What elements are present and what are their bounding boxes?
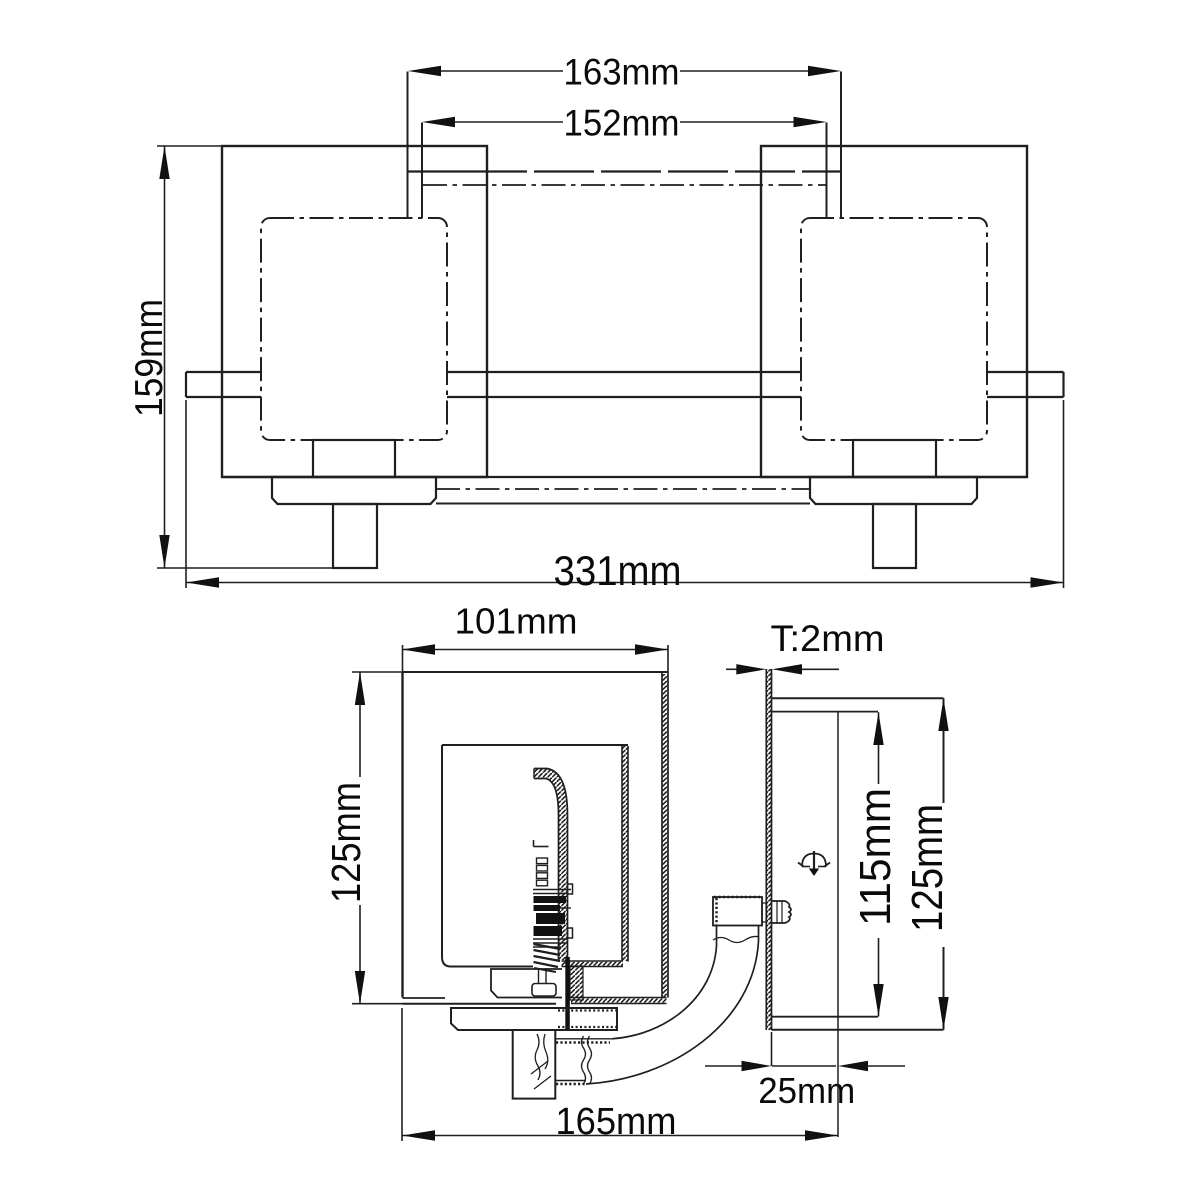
svg-text:101mm: 101mm: [455, 601, 578, 642]
svg-text:125mm: 125mm: [323, 782, 369, 903]
svg-text:165mm: 165mm: [556, 1101, 677, 1143]
svg-text:115mm: 115mm: [851, 788, 900, 926]
svg-text:125mm: 125mm: [903, 804, 952, 932]
svg-text:331mm: 331mm: [554, 547, 682, 594]
svg-text:159mm: 159mm: [128, 299, 171, 417]
svg-text:T:2mm: T:2mm: [771, 617, 885, 659]
svg-text:25mm: 25mm: [758, 1070, 855, 1111]
svg-text:163mm: 163mm: [564, 52, 680, 93]
svg-text:152mm: 152mm: [564, 103, 680, 144]
